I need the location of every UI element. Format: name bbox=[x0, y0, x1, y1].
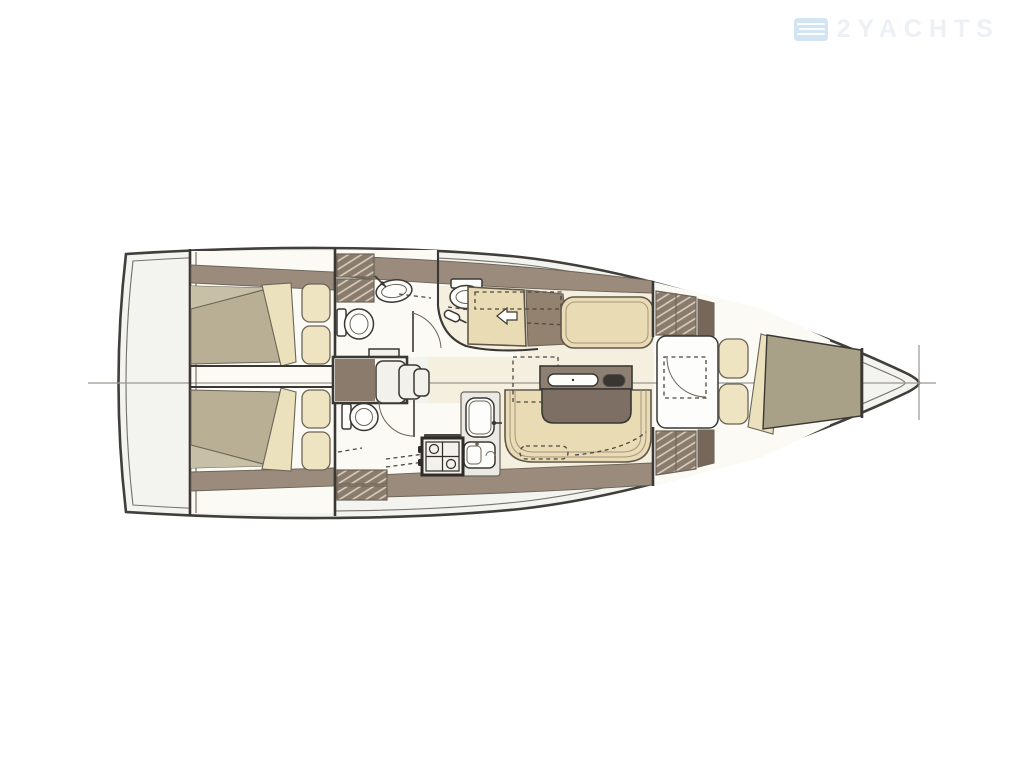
forward-cushion-port bbox=[719, 339, 748, 378]
galley-stove bbox=[418, 434, 463, 475]
watermark-waves-logo-icon bbox=[794, 18, 828, 41]
aft-corridor-floor bbox=[190, 366, 335, 387]
head-starboard-locker-2 bbox=[337, 486, 387, 500]
aft-cabin-starboard-cushion-2 bbox=[302, 432, 330, 470]
head-port-wc-toilet bbox=[337, 309, 374, 339]
v-berth-bed bbox=[657, 336, 718, 428]
watermark-text: 2YACHTS bbox=[837, 15, 1000, 44]
galley-second-sink bbox=[464, 442, 495, 468]
forward-cabinet-starboard bbox=[698, 430, 714, 467]
yacht-floorplan-image bbox=[0, 0, 1024, 768]
head-port-locker-2 bbox=[337, 279, 374, 302]
yacht-floorplan-svg bbox=[0, 0, 1024, 768]
companionway-step-3 bbox=[414, 369, 429, 396]
head-starboard-locker-1 bbox=[337, 470, 387, 484]
forward-cabinet-port bbox=[698, 299, 714, 336]
bow-sail-locker bbox=[763, 335, 861, 429]
companionway-engine-box bbox=[335, 359, 375, 401]
salon-table bbox=[540, 366, 632, 423]
salon-settee-port bbox=[561, 297, 653, 348]
head-starboard-toilet bbox=[342, 404, 378, 431]
aft-cabin-port-cushion-2 bbox=[302, 326, 330, 364]
aft-cabin-port-cushion-1 bbox=[302, 284, 330, 322]
forward-cushion-starboard bbox=[719, 384, 748, 424]
table-bottle-holder bbox=[603, 375, 625, 387]
watermark: 2YACHTS bbox=[794, 15, 1000, 44]
aft-cabin-starboard-cushion-1 bbox=[302, 390, 330, 428]
head-port-locker-1 bbox=[337, 254, 374, 277]
